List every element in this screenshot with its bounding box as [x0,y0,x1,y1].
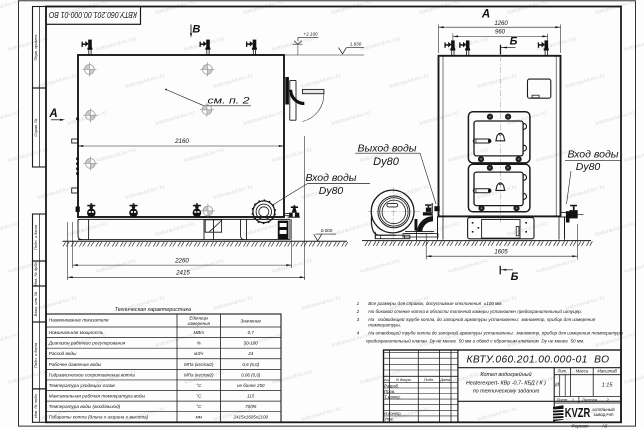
svg-text:Утв.: Утв. [384,417,393,422]
svg-text:Температура уходящих газов: Температура уходящих газов [49,383,116,388]
svg-text:2415: 2415 [175,270,190,277]
svg-text:На подводящей трубе котла, д: На подводящей трубе котла, до запорной а… [368,316,596,322]
svg-text:Рабочее давление воды: Рабочее давление воды [49,362,102,367]
svg-text:4: 4 [357,331,360,336]
svg-text:В: В [192,24,200,36]
svg-text:измерения: измерения [187,321,210,326]
svg-text:Наименование показателя: Наименование показателя [49,318,109,323]
svg-text:Вход воды: Вход воды [568,148,619,160]
svg-text:КОТЕЛЬНЫЙ: КОТЕЛЬНЫЙ [592,408,615,412]
svg-text:Инв. № дубл.: Инв. № дубл. [33,261,38,286]
svg-text:24: 24 [247,351,254,356]
svg-text:Гидравлическое сопротивление к: Гидравлическое сопротивление котла [49,372,136,377]
svg-text:Максимальная рабочая температу: Максимальная рабочая температура воды [49,394,146,399]
svg-text:1: 1 [572,397,574,402]
svg-text:Справ. №: Справ. № [33,118,38,137]
svg-text:по техническому заданию: по техническому заданию [473,389,540,395]
svg-text:1:15: 1:15 [602,382,614,388]
svg-text:3: 3 [357,317,360,322]
svg-text:На боковой стенке котла в обла: На боковой стенке котла в области топочн… [368,308,582,314]
svg-text:0,7: 0,7 [248,330,255,335]
svg-text:А: А [481,9,490,21]
svg-text:50-100: 50-100 [244,341,259,346]
svg-text:не более 250: не более 250 [237,383,265,388]
svg-text:Формат: Формат [571,423,589,428]
svg-text:Перв. примен.: Перв. примен. [33,34,38,61]
svg-text:Масса: Масса [576,369,589,374]
svg-text:0.000: 0.000 [321,228,333,233]
svg-text:см. п. 2: см. п. 2 [208,96,251,107]
svg-text:Вход воды: Вход воды [306,172,357,184]
svg-text:Взам. инв. №: Взам. инв. № [33,291,38,316]
svg-text:2415х1605х2100: 2415х1605х2100 [232,415,268,420]
svg-text:Температура воды (вход/выход): Температура воды (вход/выход) [49,404,121,409]
svg-text:Котел водогрейный: Котел водогрейный [480,371,531,378]
svg-text:2: 2 [356,309,360,314]
svg-text:Подп. и дата: Подп. и дата [33,224,38,250]
svg-text:70/95: 70/95 [245,404,257,409]
svg-text:960: 960 [495,30,506,36]
svg-text:И: И [555,382,559,388]
svg-text:Т.контр.: Т.контр. [384,395,401,400]
svg-text:1.930: 1.930 [350,42,362,47]
svg-text:Номинальная мощность: Номинальная мощность [49,330,104,335]
svg-text:Единицы: Единицы [189,315,209,320]
svg-text:А3: А3 [601,423,608,428]
svg-text:Диапазон рабочего регулировани: Диапазон рабочего регулирования [48,341,126,346]
svg-text:Лист: Лист [556,397,568,402]
svg-text:°С: °С [196,383,202,388]
svg-text:Габариты котла (длина х ширина: Габариты котла (длина х ширина х высота) [49,415,149,420]
svg-text:Все размеры для справок, допус: Все размеры для справок, допустимые откл… [368,301,502,306]
svg-text:KVZR: KVZR [565,406,591,420]
svg-text:предохранительный клапан Dу н: предохранительный клапан Dу не менее 50 … [366,338,584,344]
svg-text:Dy80: Dy80 [319,185,344,197]
svg-text:Dy80: Dy80 [576,161,601,173]
svg-text:0,06 (0,6): 0,06 (0,6) [241,372,261,377]
svg-text:Подп.: Подп. [424,377,434,382]
svg-text:0,6 (6,0): 0,6 (6,0) [242,362,259,367]
svg-text:°С: °С [196,394,202,399]
svg-text:Инв. № подл.: Инв. № подл. [33,393,38,418]
svg-text:Heaterexpert- КВр -0,7- КБД (: Heaterexpert- КВр -0,7- КБД ( К ) [466,380,546,386]
svg-text:температуры.: температуры. [368,323,401,328]
svg-text:А: А [48,108,57,120]
svg-text:Расход воды: Расход воды [49,351,77,356]
svg-text:Разраб.: Разраб. [384,383,399,388]
svg-text:%: % [197,341,201,346]
svg-text:ЗАВОД РЭП: ЗАВОД РЭП [594,413,615,417]
svg-text:1: 1 [357,301,360,306]
svg-text:Техническая характеристика: Техническая характеристика [115,307,191,313]
svg-text:Дата: Дата [439,377,451,382]
svg-text:115: 115 [247,394,255,399]
svg-text:Значение: Значение [240,318,261,323]
svg-text:Масштаб: Масштаб [597,369,617,374]
svg-text:+2.100: +2.100 [303,31,318,36]
svg-text:КВТУ.060.201.00.000-01 ВО: КВТУ.060.201.00.000-01 ВО [467,354,610,365]
svg-text:КВТУ.060.201.00.000-01 ВО: КВТУ.060.201.00.000-01 ВО [49,10,137,20]
svg-text:МПа (кгс/см2): МПа (кгс/см2) [184,362,214,367]
svg-text:МВт: МВт [194,330,205,335]
svg-text:Б: Б [511,271,519,283]
svg-text:МПа (кгс/см2): МПа (кгс/см2) [184,372,214,377]
svg-text:°С: °С [196,404,202,409]
svg-text:Подп. и дата: Подп. и дата [33,342,38,368]
svg-text:Dy80: Dy80 [373,156,400,168]
svg-text:2160: 2160 [174,138,189,145]
svg-text:Лит.: Лит. [556,369,567,374]
svg-text:2260: 2260 [174,257,189,264]
svg-text:На отводящей трубе котла до за: На отводящей трубе котла до запорной арм… [368,330,623,336]
svg-text:Н.контр.: Н.контр. [384,411,401,416]
svg-text:Листов: Листов [581,397,598,402]
svg-text:1605: 1605 [494,250,508,256]
svg-text:м3/ч: м3/ч [194,351,204,356]
svg-text:N докум.: N докум. [396,377,412,382]
svg-text:Б: Б [510,35,518,47]
svg-text:Пров.: Пров. [384,389,395,394]
svg-text:Выход воды: Выход воды [357,142,416,154]
svg-text:мм: мм [196,415,202,420]
svg-text:Изм: Изм [384,378,389,382]
svg-text:1260: 1260 [494,21,508,27]
